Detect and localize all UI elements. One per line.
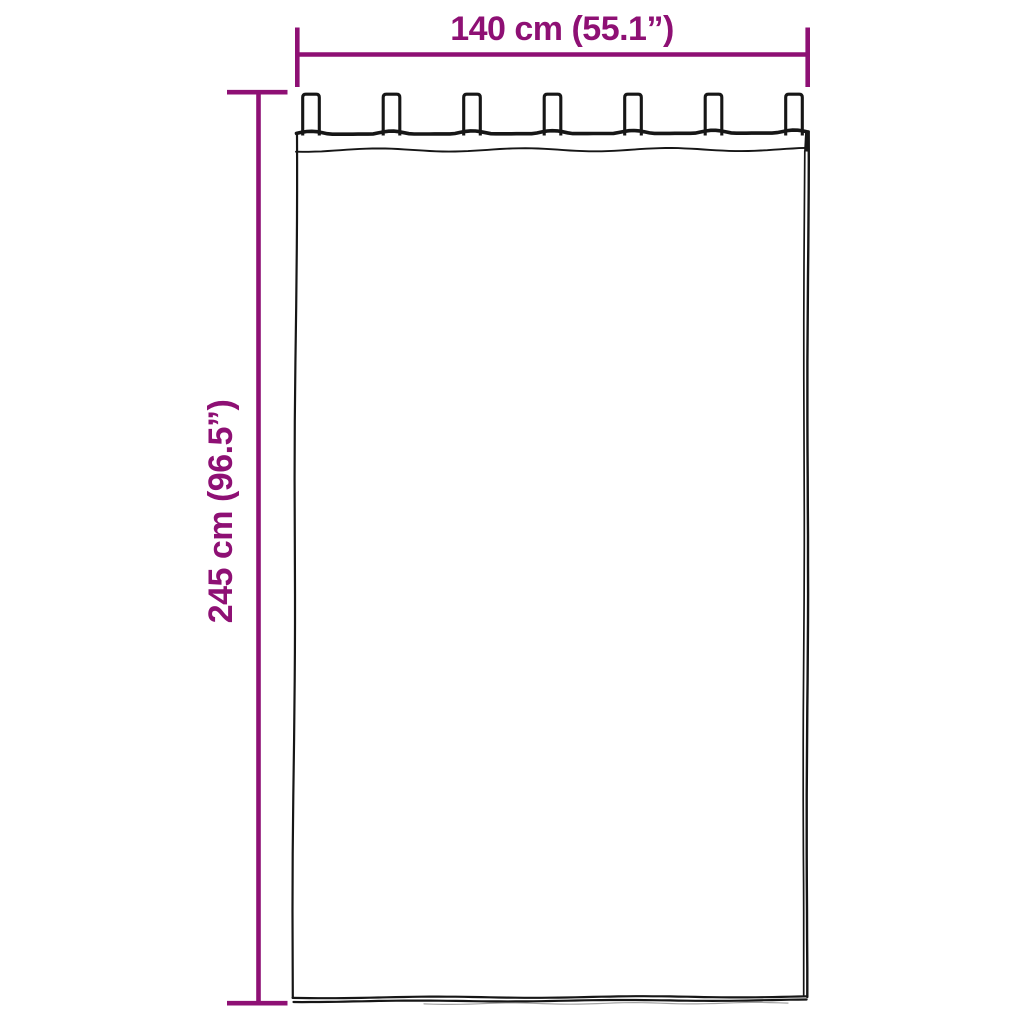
svg-text:245 cm (96.5”): 245 cm (96.5”) [202,400,240,624]
svg-text:140 cm (55.1”): 140 cm (55.1”) [450,10,674,48]
